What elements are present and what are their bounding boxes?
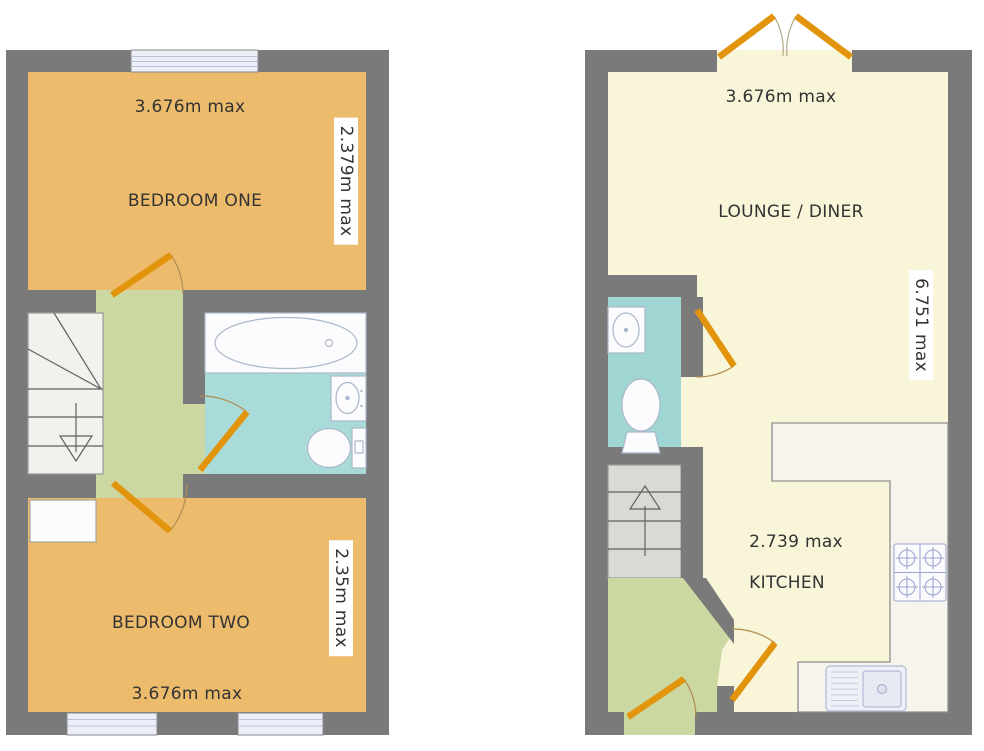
toilet-icon <box>622 379 660 453</box>
first-floor-plan <box>6 50 389 735</box>
basin-icon <box>331 376 366 421</box>
stairs-down-icon <box>28 313 103 474</box>
sink-icon <box>826 666 906 711</box>
hob-icon <box>894 544 946 601</box>
wc-wall <box>585 275 697 297</box>
ground-floor-plan <box>585 16 972 735</box>
window <box>131 50 258 72</box>
stair-wall <box>681 465 703 578</box>
french-door-opening <box>717 50 852 72</box>
internal-wall-stub <box>183 290 205 404</box>
landing-floor <box>96 290 183 498</box>
internal-wall <box>28 474 366 498</box>
wardrobe-icon <box>30 500 96 542</box>
floorplan-canvas: 3.676m max BEDROOM ONE 2.379m max BEDROO… <box>0 0 984 751</box>
window <box>238 713 323 735</box>
toilet-icon <box>308 428 367 468</box>
bath-icon <box>205 313 366 373</box>
floorplan-drawing <box>0 0 984 751</box>
basin-icon <box>608 307 645 353</box>
window <box>67 713 157 735</box>
stairs-up-icon <box>608 465 681 578</box>
